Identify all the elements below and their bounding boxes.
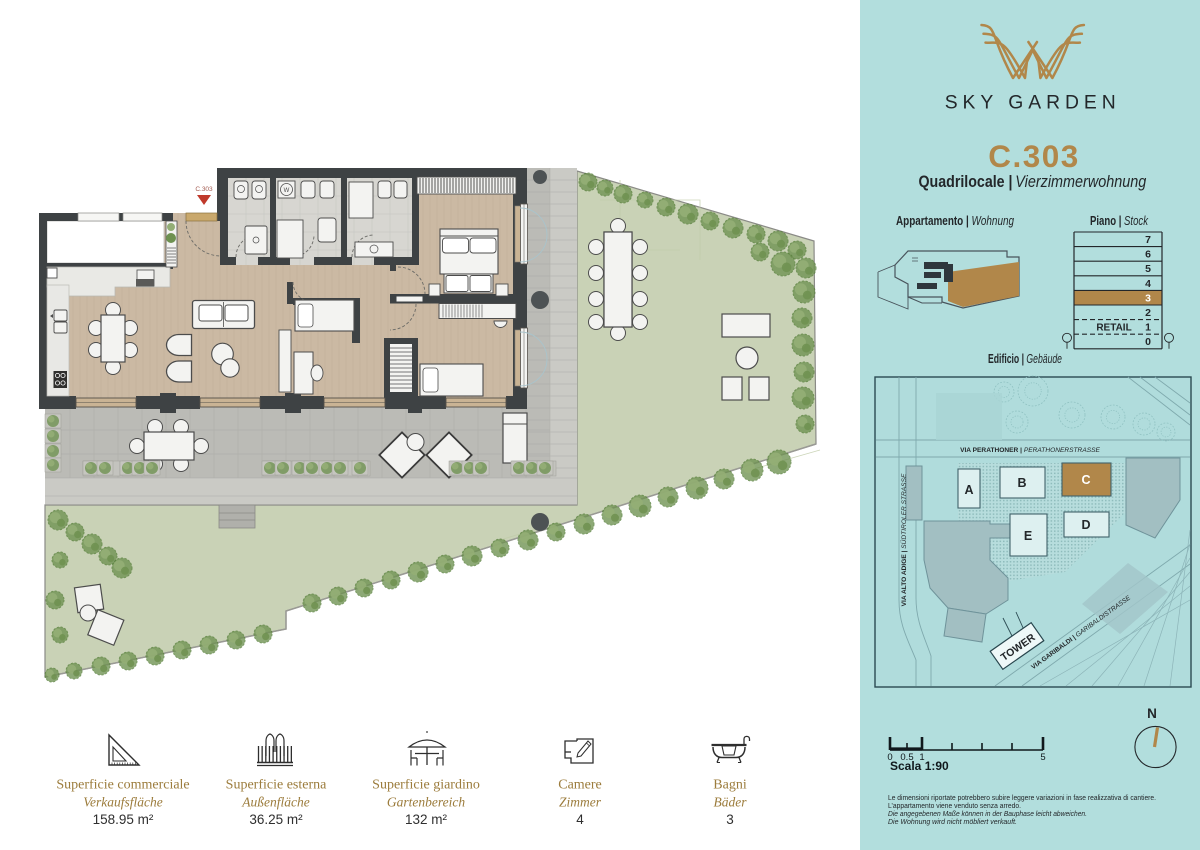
svg-text:0: 0 [1145, 336, 1151, 348]
svg-text:Verkaufsfläche: Verkaufsfläche [83, 795, 162, 810]
svg-text:RETAIL: RETAIL [1096, 323, 1131, 334]
svg-text:4: 4 [576, 812, 584, 827]
svg-text:Superficie esterna: Superficie esterna [226, 778, 327, 793]
svg-text:1: 1 [1145, 322, 1151, 334]
svg-text:Außenfläche: Außenfläche [241, 795, 309, 810]
svg-text:B: B [1017, 476, 1026, 490]
svg-text:5: 5 [1145, 263, 1151, 275]
svg-text:Camere: Camere [558, 778, 602, 793]
svg-text:VIA ALTO ADIGE | SÜDTIROLER ST: VIA ALTO ADIGE | SÜDTIROLER STRASSE [900, 473, 908, 606]
svg-text:Gartenbereich: Gartenbereich [387, 795, 465, 810]
svg-text:132 m²: 132 m² [405, 812, 448, 827]
svg-text:VIA PERATHONER | PERATHONERSTR: VIA PERATHONER | PERATHONERSTRASSE [960, 447, 1100, 454]
svg-text:5: 5 [1040, 752, 1045, 763]
svg-text:C.303: C.303 [988, 138, 1080, 174]
svg-text:Appartamento | Wohnung: Appartamento | Wohnung [896, 214, 1014, 228]
svg-text:Die Wohnung wird nicht möblier: Die Wohnung wird nicht möbliert verkauft… [888, 817, 1017, 826]
svg-text:36.25 m²: 36.25 m² [249, 812, 303, 827]
svg-text:Piano | Stock: Piano | Stock [1090, 214, 1149, 228]
svg-text:Vierzimmerwohnung: Vierzimmerwohnung [1015, 173, 1147, 191]
svg-text:6: 6 [1145, 249, 1151, 261]
svg-text:W: W [284, 188, 290, 194]
svg-text:Bäder: Bäder [714, 795, 748, 810]
svg-text:3: 3 [1145, 292, 1151, 304]
svg-text:Zimmer: Zimmer [559, 795, 602, 810]
svg-text:4: 4 [1145, 278, 1151, 290]
svg-text:C.303: C.303 [195, 186, 213, 193]
svg-text:158.95 m²: 158.95 m² [93, 812, 154, 827]
svg-text:3: 3 [726, 812, 734, 827]
svg-text:SKY GARDEN: SKY GARDEN [945, 92, 1121, 114]
svg-text:Bagni: Bagni [713, 778, 747, 793]
svg-text:7: 7 [1145, 234, 1151, 246]
svg-text:D: D [1081, 518, 1090, 532]
svg-text:Quadrilocale |: Quadrilocale | [919, 173, 1013, 191]
svg-text:Superficie giardino: Superficie giardino [372, 778, 480, 793]
svg-text:C: C [1081, 473, 1090, 487]
svg-text:Scala 1:90: Scala 1:90 [890, 759, 949, 773]
svg-text:2: 2 [1145, 307, 1151, 319]
svg-text:Edificio | Gebäude: Edificio | Gebäude [988, 352, 1062, 366]
svg-text:Superficie commerciale: Superficie commerciale [56, 778, 189, 793]
svg-text:A: A [964, 483, 973, 497]
svg-text:N: N [1147, 706, 1157, 721]
svg-text:E: E [1024, 529, 1032, 543]
